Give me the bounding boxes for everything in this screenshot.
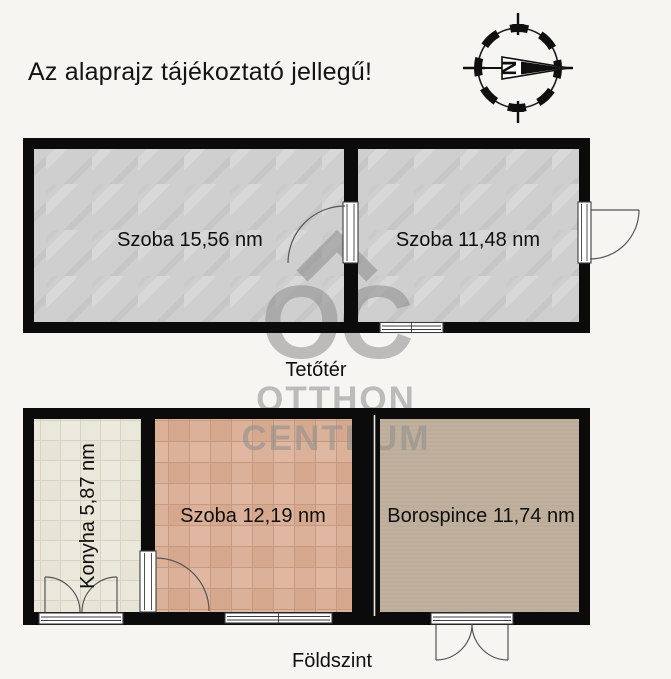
room-label-konyha: Konyha 5,87 nm <box>77 443 99 589</box>
wall-attic-left <box>23 138 34 333</box>
door-swing-arc <box>472 625 508 661</box>
attic-entry-door-symbol <box>578 202 639 263</box>
room-label-attic-szoba-left: Szoba 15,56 nm <box>117 229 263 251</box>
floor-label-attic: Tetőtér <box>285 359 346 381</box>
wall-ground-right <box>579 408 590 625</box>
room-label-attic-szoba-right: Szoba 11,48 nm <box>396 229 540 251</box>
watermark-logo: OC OTTHON CENTRUM <box>242 241 431 458</box>
borospince-double-door-symbol <box>431 613 513 660</box>
room-label-szoba-ground: Szoba 12,19 nm <box>180 505 326 527</box>
compass-north-label: N <box>497 60 520 75</box>
watermark-brand-bottom: CENTRUM <box>242 419 431 458</box>
szoba-window-symbol <box>225 613 332 623</box>
floor-label-ground: Földszint <box>292 650 372 672</box>
floorplan-drawing: OC OTTHON CENTRUM <box>0 0 671 679</box>
wall-szoba-borospince-divider <box>352 419 380 612</box>
wall-attic-bottom <box>23 322 590 333</box>
door-swing-arc <box>590 210 639 259</box>
attic-window-symbol <box>380 323 443 333</box>
wall-ground-left <box>23 408 34 625</box>
wall-ground-top <box>23 408 590 419</box>
room-label-borospince: Borospince 11,74 nm <box>387 505 575 527</box>
door-swing-arc <box>436 625 472 661</box>
compass-icon: N <box>463 13 573 123</box>
wall-attic-top <box>23 138 590 149</box>
floorplan-page: Az alaprajz tájékoztató jellegű! <box>0 0 671 679</box>
